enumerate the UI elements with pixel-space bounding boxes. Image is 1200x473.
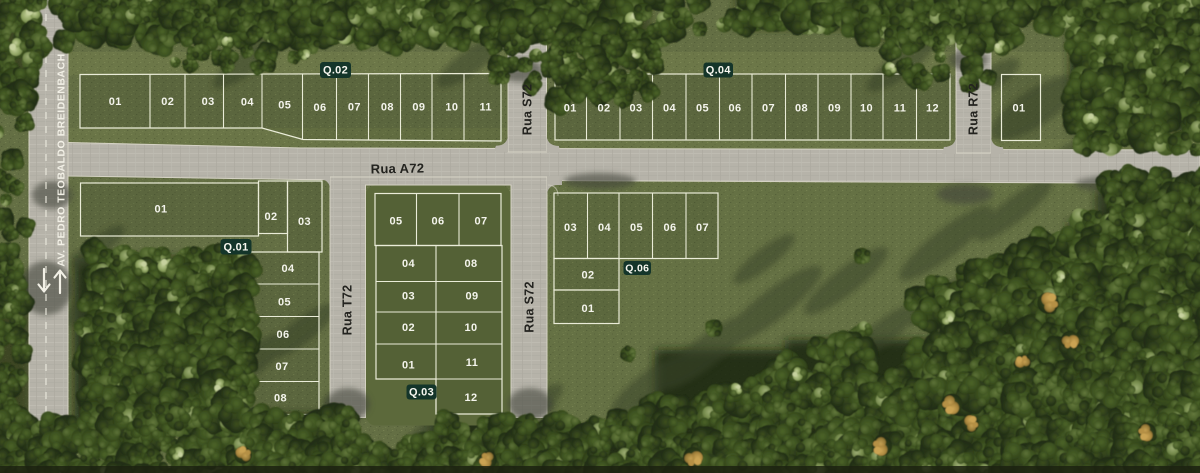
- svg-text:08: 08: [274, 393, 287, 405]
- svg-text:05: 05: [278, 297, 291, 309]
- svg-text:07: 07: [348, 102, 361, 114]
- svg-text:Q.02: Q.02: [323, 65, 348, 77]
- svg-text:07: 07: [762, 103, 775, 115]
- svg-text:06: 06: [313, 102, 326, 114]
- svg-text:07: 07: [696, 222, 709, 234]
- svg-text:02: 02: [402, 322, 415, 334]
- svg-text:02: 02: [581, 270, 594, 282]
- svg-text:06: 06: [276, 329, 289, 341]
- svg-text:04: 04: [663, 103, 677, 115]
- svg-text:09: 09: [828, 103, 841, 115]
- svg-text:03: 03: [629, 103, 642, 115]
- svg-text:01: 01: [109, 96, 122, 108]
- svg-text:Rua T72: Rua T72: [341, 285, 355, 336]
- svg-text:10: 10: [445, 102, 458, 114]
- svg-text:02: 02: [597, 103, 610, 115]
- svg-text:Q.03: Q.03: [409, 387, 434, 399]
- svg-text:11: 11: [466, 357, 478, 369]
- svg-text:03: 03: [298, 216, 311, 228]
- svg-text:02: 02: [161, 96, 174, 108]
- svg-text:07: 07: [474, 216, 487, 228]
- svg-text:01: 01: [581, 303, 594, 315]
- svg-text:08: 08: [464, 258, 477, 270]
- svg-text:01: 01: [402, 360, 415, 372]
- svg-text:10: 10: [464, 322, 477, 334]
- svg-text:03: 03: [402, 291, 415, 303]
- svg-text:05: 05: [630, 222, 643, 234]
- svg-text:Rua R72: Rua R72: [967, 83, 981, 135]
- svg-text:05: 05: [389, 216, 402, 228]
- svg-text:Q.04: Q.04: [706, 65, 732, 77]
- svg-text:04: 04: [402, 258, 416, 270]
- svg-text:01: 01: [564, 103, 577, 115]
- svg-text:04: 04: [281, 263, 295, 275]
- svg-text:12: 12: [926, 103, 939, 115]
- svg-text:03: 03: [202, 96, 215, 108]
- svg-text:06: 06: [431, 216, 444, 228]
- svg-text:03: 03: [564, 222, 577, 234]
- svg-text:08: 08: [381, 102, 394, 114]
- svg-text:01: 01: [154, 204, 167, 216]
- svg-text:04: 04: [241, 97, 255, 109]
- svg-text:Rua S72: Rua S72: [521, 84, 535, 135]
- svg-text:Q.01: Q.01: [223, 241, 248, 253]
- svg-text:06: 06: [728, 103, 741, 115]
- svg-text:11: 11: [479, 102, 491, 114]
- svg-text:AV. PEDRO TEOBALDO BREIDENBACH: AV. PEDRO TEOBALDO BREIDENBACH: [56, 53, 68, 266]
- svg-text:Q.06: Q.06: [625, 263, 649, 275]
- svg-text:02: 02: [264, 211, 277, 223]
- svg-text:10: 10: [860, 103, 873, 115]
- svg-text:09: 09: [412, 102, 425, 114]
- svg-text:05: 05: [696, 103, 709, 115]
- svg-text:12: 12: [464, 392, 477, 404]
- svg-text:09: 09: [465, 291, 478, 303]
- svg-text:Rua A72: Rua A72: [371, 161, 425, 177]
- svg-text:01: 01: [1012, 103, 1025, 115]
- svg-text:04: 04: [598, 222, 612, 234]
- svg-text:05: 05: [278, 100, 291, 112]
- svg-text:11: 11: [894, 103, 906, 115]
- svg-text:07: 07: [275, 361, 288, 373]
- svg-text:06: 06: [663, 222, 676, 234]
- svg-text:Rua S72: Rua S72: [523, 281, 537, 332]
- svg-text:08: 08: [795, 103, 808, 115]
